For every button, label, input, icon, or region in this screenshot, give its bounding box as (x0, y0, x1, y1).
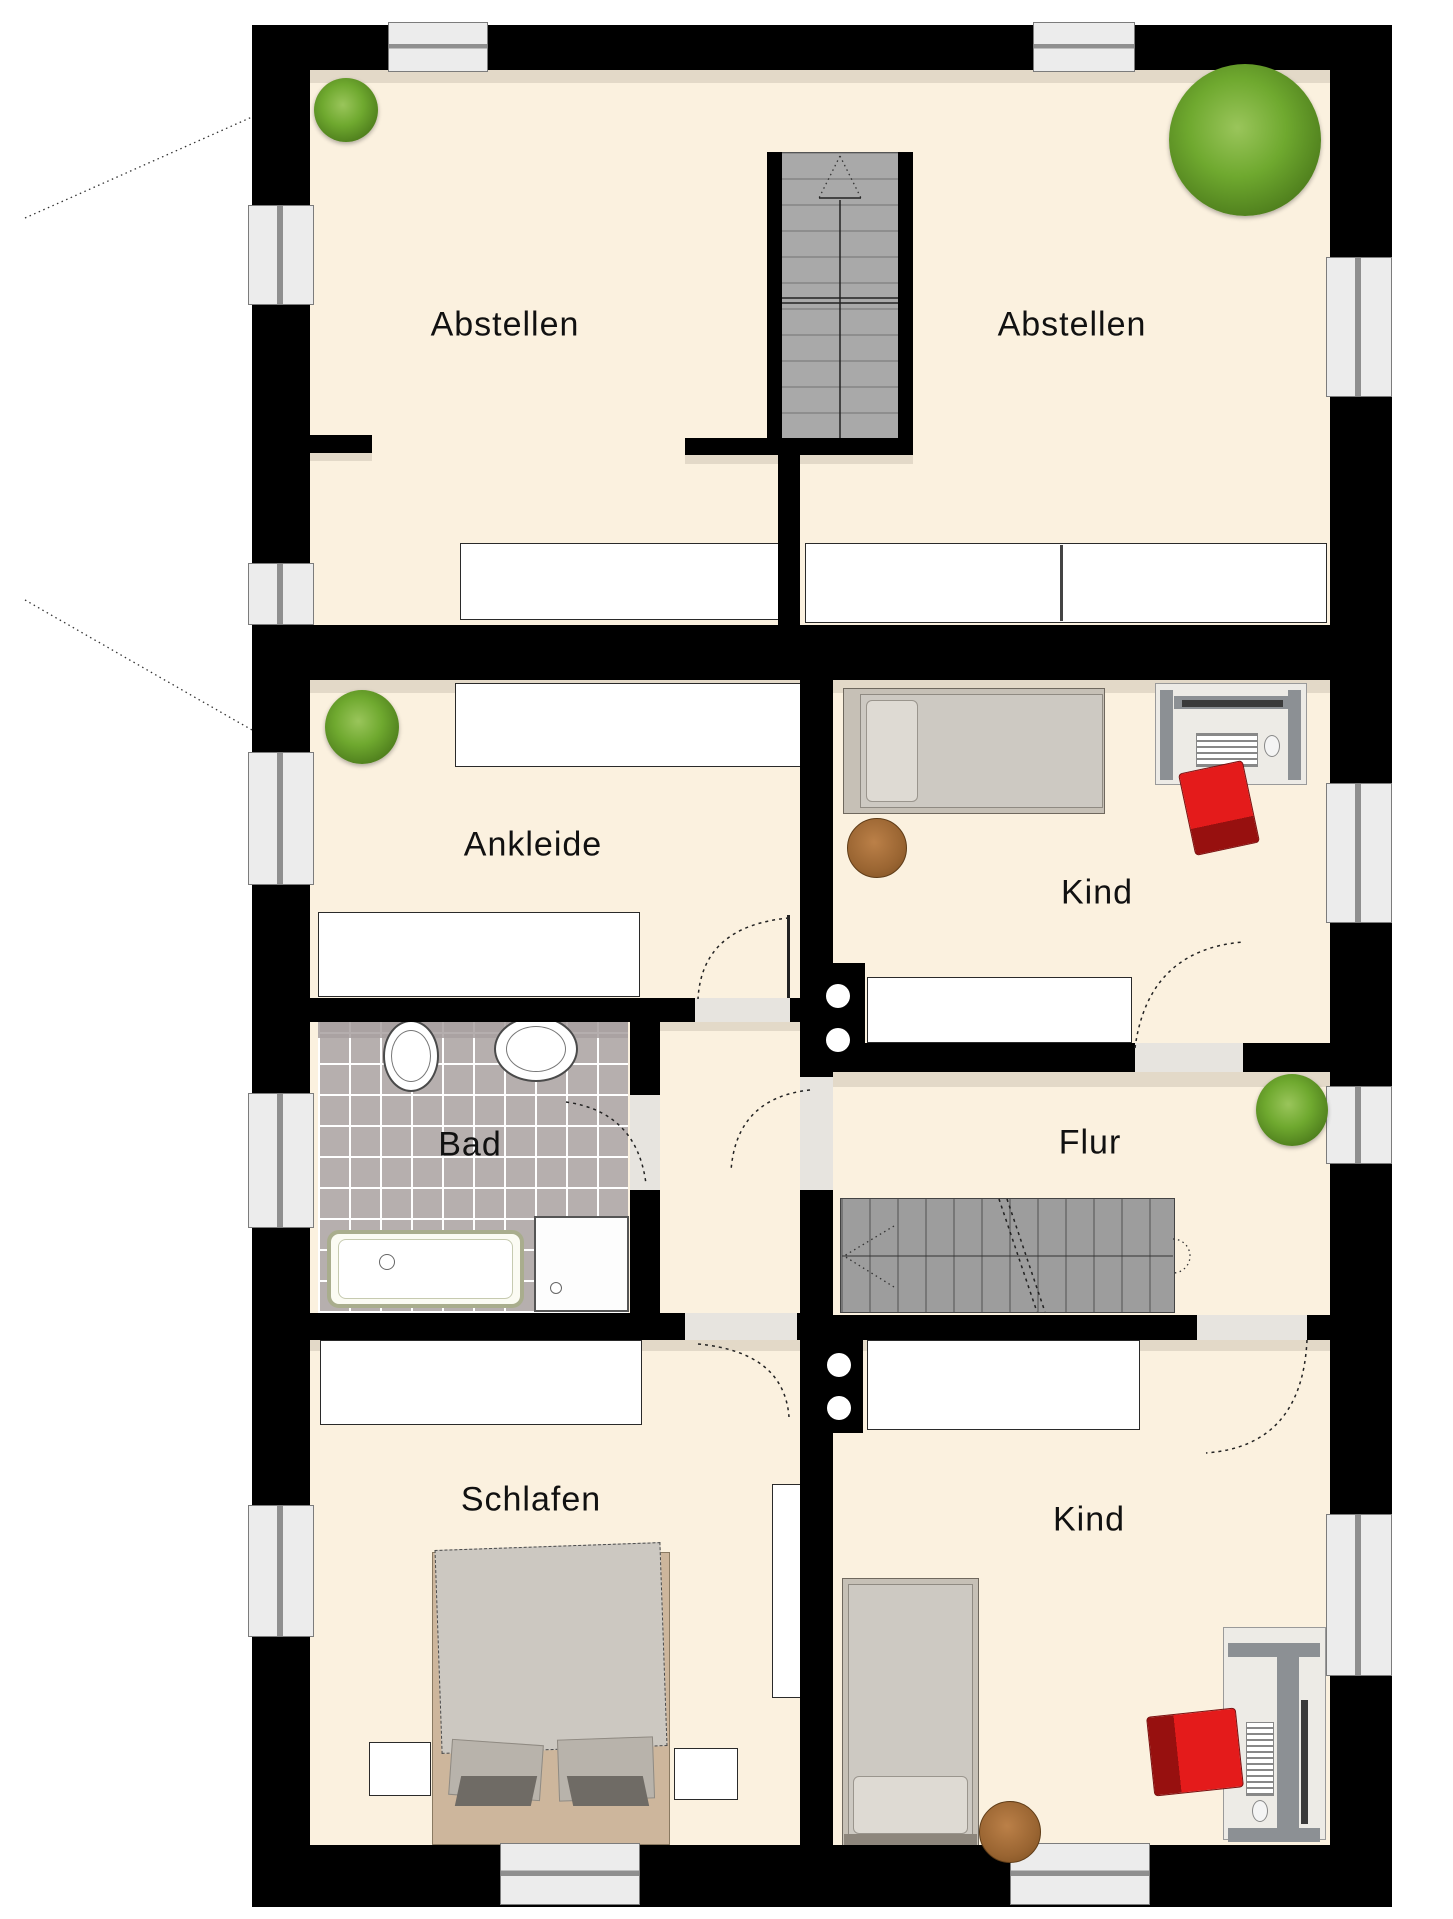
desk-crossbar (1228, 1828, 1320, 1842)
bed-schlafen-pillow-right (567, 1776, 649, 1806)
wall-center-b (800, 1190, 833, 1313)
pouf-kind-bottom (979, 1801, 1041, 1863)
bed-schlafen-duvet (435, 1542, 668, 1754)
shower-drain (550, 1282, 562, 1294)
closet-abstellen-left (460, 543, 780, 620)
wall-flur-top-east (1243, 1043, 1330, 1072)
room-label-schlafen: Schlafen (461, 1481, 601, 1520)
room-label-ankleide: Ankleide (464, 826, 602, 865)
staircase-upper (782, 152, 898, 440)
wall-stub-center (778, 455, 800, 625)
desk-crossbar (1228, 1643, 1320, 1657)
mouse-kind-bottom (1252, 1800, 1268, 1822)
window-left-5 (248, 1505, 314, 1637)
wall-flur-bottom-east (1307, 1315, 1330, 1340)
reference-line-upper (25, 117, 252, 218)
room-label-bad: Bad (438, 1126, 502, 1165)
room-label-abstellen-left: Abstellen (431, 306, 580, 345)
closet-abstellen-right (805, 543, 1327, 623)
plant-abstellen-right (1169, 64, 1321, 216)
window-left-1 (248, 205, 314, 305)
plant-ankleide (325, 690, 399, 764)
bathroom-tile-top-row (318, 1022, 628, 1038)
window-right-4 (1326, 1514, 1392, 1676)
wall-divider-mid (310, 625, 1330, 680)
room-label-abstellen-right: Abstellen (998, 306, 1147, 345)
window-top-2 (1033, 22, 1135, 72)
window-right-3 (1326, 1086, 1392, 1164)
bed-kind-bottom-pillow (853, 1776, 968, 1834)
keyboard-kind-top (1196, 733, 1258, 767)
monitor-kind-bottom (1301, 1700, 1308, 1824)
window-right-1 (1326, 257, 1392, 397)
pouf-kind-top (847, 818, 907, 878)
keyboard-kind-bottom (1246, 1722, 1274, 1796)
desk-kind-bottom (1223, 1627, 1326, 1840)
closet-kind-top (867, 977, 1132, 1043)
wall-shadow (833, 1072, 1330, 1087)
wall-ankleide-bottom-west (310, 998, 695, 1022)
door-opening-schlafen (685, 1313, 797, 1340)
plant-flur (1256, 1074, 1328, 1146)
door-leaf-ankleide (787, 915, 790, 1002)
floor-plan: AbstellenAbstellenAnkleideKindBadFlurSch… (0, 0, 1453, 1919)
chair-kind-bottom (1146, 1708, 1244, 1797)
door-opening-flur (800, 1077, 833, 1190)
window-left-3 (248, 752, 314, 885)
wall-bad-right-upper (630, 1022, 660, 1095)
staircase-flur (840, 1198, 1175, 1313)
window-left-4 (248, 1093, 314, 1228)
reference-line-lower (25, 600, 252, 730)
desk-leg (1160, 690, 1173, 780)
wall-stair-right (898, 152, 913, 455)
nightstand-right (674, 1748, 738, 1800)
toilet-bowl (391, 1030, 431, 1082)
room-label-kind-top: Kind (1061, 874, 1133, 913)
bathtub-drain (379, 1254, 395, 1270)
window-right-2 (1326, 783, 1392, 923)
wall-shadow (310, 453, 372, 461)
window-left-2 (248, 563, 314, 625)
door-opening-ankleide (695, 998, 790, 1022)
room-label-flur: Flur (1059, 1124, 1122, 1163)
plant-abstellen-left (314, 78, 378, 142)
wall-bottom (252, 1845, 1390, 1907)
mouse-kind-top (1264, 735, 1280, 757)
closet-ankleide-top (455, 683, 810, 767)
chimney-flue (827, 1353, 851, 1377)
wall-flur-bottom-west (833, 1315, 1197, 1340)
desk-leg (1277, 1643, 1299, 1842)
wall-bad-right-lower (630, 1190, 660, 1313)
wall-flur-top-west (833, 1043, 1135, 1072)
wall-shadow (660, 1022, 800, 1031)
wall-corridor-bottom-east (797, 1313, 833, 1340)
chimney-flue (827, 1396, 851, 1420)
wall-stub-west (310, 435, 372, 453)
wall-corridor-bottom-west (310, 1313, 685, 1340)
wall-stair-left (767, 152, 782, 455)
door-opening-kind-top (1135, 1043, 1243, 1072)
window-bottom-1 (500, 1843, 640, 1905)
door-opening-kind-bottom (1197, 1315, 1307, 1340)
window-top-1 (388, 22, 488, 72)
chimney-flue (826, 1028, 850, 1052)
sink-basin (506, 1026, 566, 1072)
shower (534, 1216, 629, 1312)
room-label-kind-bottom: Kind (1053, 1501, 1125, 1540)
wall-stair-bottom (685, 438, 913, 455)
bed-kind-top-pillow (866, 700, 918, 802)
door-opening-bad (630, 1095, 660, 1190)
bed-schlafen-pillow-left (455, 1776, 537, 1806)
closet-kind-bottom (867, 1340, 1140, 1430)
bathtub-inner (338, 1239, 513, 1299)
chimney-flue (826, 984, 850, 1008)
closet-schlafen (320, 1340, 642, 1425)
closet-divider (1060, 545, 1063, 621)
monitor-kind-top (1182, 700, 1283, 707)
nightstand-left (369, 1742, 431, 1796)
closet-ankleide-bottom (318, 912, 640, 997)
